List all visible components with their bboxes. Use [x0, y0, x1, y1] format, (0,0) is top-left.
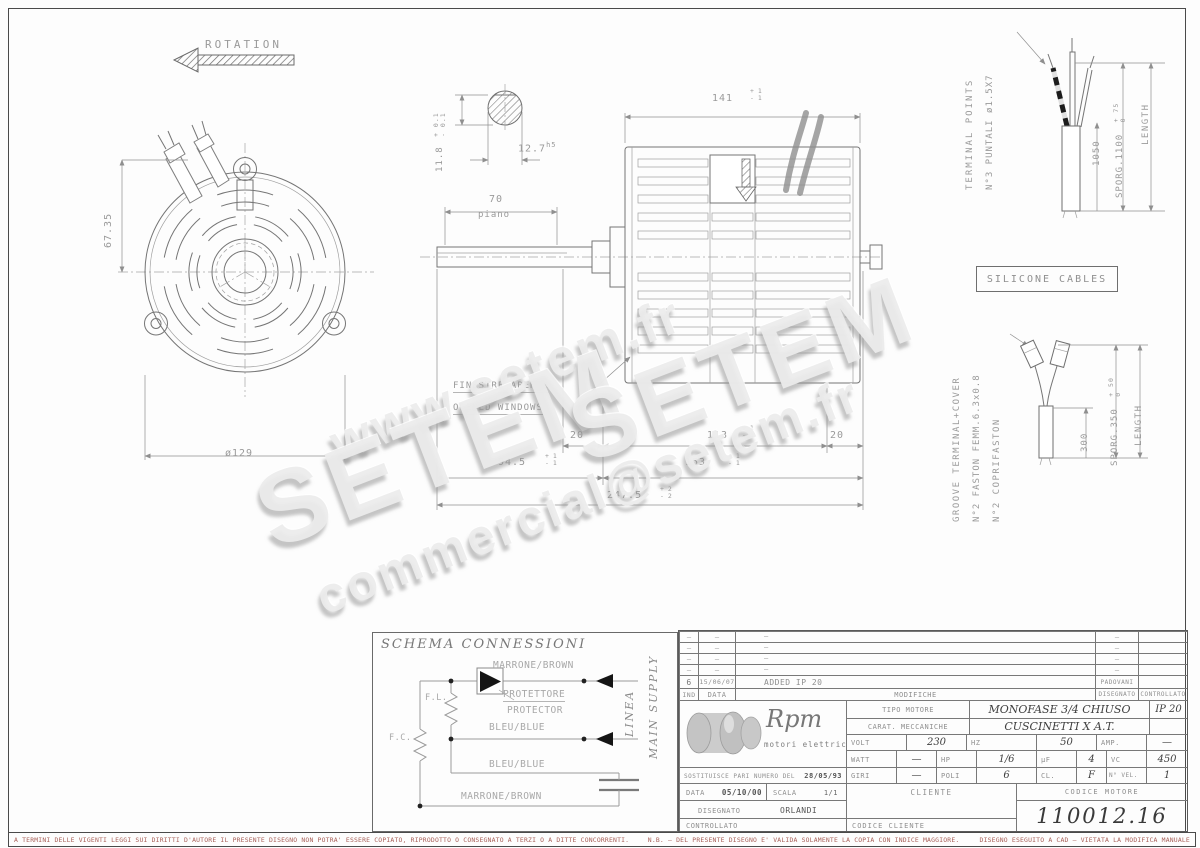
carat-empty-cell	[1149, 718, 1187, 734]
windows-note-en: OPENED WINDOWS	[453, 403, 543, 415]
disclaimer-left: A TERMINI DELLE VIGENTI LEGGI SUI DIRITT…	[14, 836, 629, 844]
codice-cliente-label: CODICE CLIENTE	[852, 822, 925, 830]
poli-label: POLI	[936, 767, 976, 783]
disclaimer-strip: A TERMINI DELLE VIGENTI LEGGI SUI DIRITT…	[8, 832, 1196, 847]
logo-motor-icon	[685, 708, 761, 758]
cliente-cell: CLIENTE	[846, 783, 1016, 818]
nvel-value: 1	[1146, 767, 1187, 783]
rev-date: –	[698, 653, 735, 664]
logo-cell: Rpm motori elettrici	[679, 700, 846, 767]
rev-mod: –	[735, 664, 1095, 675]
terminal-points-label: TERMINAL POINTS	[965, 79, 975, 190]
codice-motore-label: CODICE MOTORE	[1016, 783, 1187, 800]
data-label: DATA	[686, 789, 705, 797]
rev-ind-6: 6	[679, 675, 698, 688]
drawing-sheet: ROTATION	[0, 0, 1200, 848]
sporg-350-label: SPORG.350 + 500	[1108, 377, 1121, 466]
cliente-label: CLIENTE	[847, 788, 1016, 797]
protettore-label: PROTETTORE	[503, 689, 565, 702]
controllato-cell: CONTROLLATO	[679, 818, 846, 831]
data-cell: DATA 05/10/00	[679, 783, 766, 800]
giri-value: —	[896, 767, 936, 783]
rev-ctl	[1138, 642, 1187, 653]
tipo-motore-value: MONOFASE 3/4 CHIUSO	[969, 700, 1149, 718]
dim-20-left: 20	[570, 430, 584, 441]
dim-flat-label: piano	[478, 210, 510, 220]
cl-value: F	[1076, 767, 1106, 783]
dim-2475: 247.5	[607, 490, 642, 501]
silicone-cables-box: SILICONE CABLES	[976, 266, 1118, 292]
sporg-1100-label: SPORG.1100 + 750	[1113, 103, 1126, 198]
dim-2475-tol: + 2- 2	[660, 486, 672, 499]
sostituisce-label: SOSTITUISCE PARI NUMERO DEL	[684, 773, 795, 780]
rev-date: –	[698, 631, 735, 642]
uf-value: 4	[1076, 750, 1106, 767]
front-view-drawing	[90, 105, 420, 475]
vc-label: VC	[1106, 750, 1146, 767]
rev-ctl-6	[1138, 675, 1187, 688]
scala-value: 1/1	[824, 789, 838, 797]
codice-motore-value: 110012.16	[1016, 800, 1187, 831]
dim-1050: 1050	[1092, 140, 1102, 166]
carat-label: CARAT. MECCANICHE	[846, 718, 969, 734]
windows-note-it: FINESTRE APERTE	[453, 381, 549, 393]
coprifaston-label: N°2 COPRIFASTON	[992, 418, 1002, 522]
volt-label: VOLT	[846, 734, 906, 750]
disclaimer-right-2: DISEGNO ESEGUITO A CAD – VIETATA LA MODI…	[980, 836, 1190, 844]
rev-des: –	[1095, 631, 1138, 642]
dim-20-right: 20	[830, 430, 844, 441]
rev-header-modifiche: MODIFICHE	[735, 688, 1095, 700]
rev-ind: –	[679, 653, 698, 664]
wire-label-brown-top: MARRONE/BROWN	[493, 660, 574, 671]
rev-date: –	[698, 664, 735, 675]
rev-des: –	[1095, 664, 1138, 675]
hp-label: HP	[936, 750, 976, 767]
rev-mod-6: ADDED IP 20	[735, 675, 1095, 688]
dim-diameter-front: ø129	[225, 448, 253, 459]
rev-header-disegnato: DISEGNATO	[1095, 688, 1138, 700]
linea-label: LINEA	[623, 690, 636, 737]
wire-label-brown-bottom: MARRONE/BROWN	[461, 791, 542, 802]
rev-header-ind: IND	[679, 688, 698, 700]
length-label-bottom: LENGTH	[1134, 404, 1144, 446]
terminal-cable-drawing	[1015, 28, 1190, 213]
rev-header-controllato: CONTROLLATO	[1138, 688, 1187, 700]
side-view-drawing	[420, 95, 885, 515]
uf-label: µF	[1036, 750, 1076, 767]
disclaimer-right: N.B. – DEL PRESENTE DISEGNO E' VALIDA SO…	[648, 836, 1190, 844]
hz-label: HZ	[966, 734, 1036, 750]
hp-value: 1/6	[976, 750, 1036, 767]
controllato-label: CONTROLLATO	[686, 822, 738, 830]
disegnato-label: DISEGNATO	[698, 807, 740, 815]
disegnato-value: ORLANDI	[780, 806, 817, 815]
rev-mod: –	[735, 653, 1095, 664]
protector-label: PROTECTOR	[507, 705, 563, 716]
dim-300: 300	[1080, 433, 1090, 452]
volt-value: 230	[906, 734, 966, 750]
hz-value: 50	[1036, 734, 1096, 750]
wire-label-blue-low: BLEU/BLUE	[489, 759, 545, 770]
rev-mod: –	[735, 631, 1095, 642]
rev-header-data: DATA	[698, 688, 735, 700]
faston-label: N°2 FASTON FEMM.6.3x0.8	[972, 374, 982, 522]
rotation-arrow-icon	[172, 45, 297, 77]
groove-label: GROOVE TERMINAL+COVER	[952, 377, 962, 522]
codice-cliente-cell: CODICE CLIENTE	[846, 818, 1016, 831]
dim-height-front: 67.35	[103, 213, 114, 248]
scala-label: SCALA	[773, 789, 797, 797]
faston-cable-drawing	[1008, 332, 1188, 472]
dim-total-length-tol: + 1- 1	[750, 88, 762, 101]
sostituisce-date: 28/05/93	[804, 772, 842, 780]
tipo-motore-label: TIPO MOTORE	[846, 700, 969, 718]
data-value: 05/10/00	[722, 788, 762, 797]
rev-ind: –	[679, 664, 698, 675]
fl-label: F.L.	[425, 693, 447, 703]
cl-label: CL.	[1036, 767, 1076, 783]
logo-name: Rpm	[766, 705, 822, 733]
wire-label-blue-mid: BLEU/BLUE	[489, 722, 545, 733]
dim-113: 113	[707, 430, 728, 441]
rev-ind: –	[679, 631, 698, 642]
title-block: – – – – – – – – – – – – – – – – 6 15/06/…	[678, 630, 1188, 832]
logo-subtitle: motori elettrici	[764, 740, 846, 749]
dim-113-tol: + 1- 1	[742, 425, 754, 438]
scala-cell: SCALA 1/1	[766, 783, 846, 800]
rev-ctl	[1138, 664, 1187, 675]
rev-des-6: PADOVANI	[1095, 675, 1138, 688]
dim-945-tol: + 1- 1	[545, 453, 557, 466]
length-label-top: LENGTH	[1141, 103, 1151, 145]
fc-label: F.C.	[389, 733, 411, 743]
main-supply-label: MAIN SUPPLY	[647, 655, 660, 759]
disclaimer-right-1: N.B. – DEL PRESENTE DISEGNO E' VALIDA SO…	[648, 836, 960, 844]
dim-total-length: 141	[712, 93, 733, 104]
rev-ctl	[1138, 631, 1187, 642]
giri-label: GIRI	[846, 767, 896, 783]
rev-ind: –	[679, 642, 698, 653]
ip-rating: IP 20	[1149, 700, 1187, 718]
rev-des: –	[1095, 653, 1138, 664]
schema-title: SCHEMA CONNESSIONI	[381, 637, 586, 652]
dim-153-tol: + 1- 1	[728, 453, 740, 466]
vc-value: 450	[1146, 750, 1187, 767]
amp-label: AMP.	[1096, 734, 1146, 750]
dim-153: 153	[685, 457, 706, 468]
nvel-label: N° VEL.	[1106, 767, 1146, 783]
watt-label: WATT	[846, 750, 896, 767]
rev-ctl	[1138, 653, 1187, 664]
rev-date-6: 15/06/07	[698, 675, 735, 688]
carat-value: CUSCINETTI X A.T.	[969, 718, 1149, 734]
puntali-label: N°3 PUNTALI ø1.5X7	[985, 74, 995, 190]
disegnato-cell: DISEGNATO ORLANDI	[679, 800, 846, 818]
rev-des: –	[1095, 642, 1138, 653]
rev-date: –	[698, 642, 735, 653]
amp-value: —	[1146, 734, 1187, 750]
poli-value: 6	[976, 767, 1036, 783]
watt-value: —	[896, 750, 936, 767]
sostituisce-cell: SOSTITUISCE PARI NUMERO DEL 28/05/93	[679, 767, 846, 783]
dim-945: 94.5	[498, 457, 526, 468]
dim-flat-length: 70	[489, 194, 503, 205]
connection-schema-box: SCHEMA CONNESSIONI MARRONE/BROWN PROTETT…	[372, 632, 678, 832]
rev-mod: –	[735, 642, 1095, 653]
